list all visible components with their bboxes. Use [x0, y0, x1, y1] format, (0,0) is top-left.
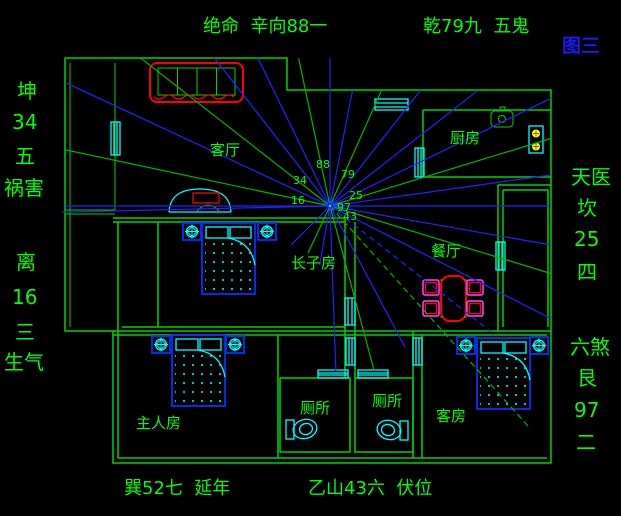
compass-ray — [330, 206, 551, 245]
compass-ray — [308, 206, 330, 253]
center-number-34: 34 — [293, 175, 307, 187]
window-bedroom-right — [345, 298, 355, 325]
annotation-top-left: 绝命 辛向88一 — [203, 17, 327, 37]
compass-ray — [62, 206, 330, 212]
window-corridor-left — [346, 338, 355, 365]
annotation-left-li: 离 — [16, 251, 36, 273]
annotation-left-san: 三 — [15, 321, 35, 343]
room-label-toilet-left: 厕所 — [300, 400, 330, 417]
nightstand — [226, 336, 244, 353]
annotation-right-97: 97 — [574, 399, 599, 421]
figure-tag: 图三 — [562, 36, 600, 57]
annotation-left-wu: 五 — [15, 145, 35, 167]
annotation-right-liusha: 六煞 — [570, 336, 610, 358]
compass-ray — [214, 58, 330, 206]
annotation-right-tianyi: 天医 — [571, 166, 611, 188]
annotation-right-kan: 坎 — [577, 197, 597, 219]
annotation-left-34: 34 — [12, 111, 37, 133]
annotation-right-25: 25 — [574, 228, 599, 250]
bed-eldest-son — [202, 223, 255, 294]
room-label-master: 主人房 — [136, 415, 181, 432]
nightstand — [183, 223, 201, 240]
stove — [529, 126, 543, 153]
sofa — [150, 63, 243, 102]
compass-ray — [330, 206, 551, 274]
furniture — [150, 63, 548, 442]
bed-master — [172, 335, 225, 406]
toilet-fixture-right — [375, 418, 408, 443]
nightstand — [457, 337, 475, 354]
dining-table-set — [423, 276, 483, 321]
compass-ray — [330, 206, 336, 371]
annotation-left-16: 16 — [12, 286, 37, 308]
toilet-fixture-left — [286, 417, 319, 442]
annotation-bottom-right: 乙山43六 伏位 — [308, 479, 432, 499]
center-number-79: 79 — [341, 169, 355, 181]
annotation-left-huohai: 祸害 — [4, 177, 44, 199]
annotation-right-er: 二 — [576, 431, 596, 453]
center-number-16: 16 — [291, 195, 305, 207]
annotation-top-right: 乾79九 五鬼 — [423, 17, 529, 37]
room-label-eldest-son: 长子房 — [291, 255, 336, 272]
center-number-25: 25 — [349, 190, 363, 202]
annotation-left-kun: 坤 — [17, 80, 37, 102]
window-toilet-right — [358, 370, 388, 378]
window-top-wall — [375, 99, 408, 110]
room-label-dining-room: 餐厅 — [431, 243, 461, 260]
room-label-living-room: 客厅 — [210, 142, 240, 159]
room-label-kitchen: 厨房 — [450, 130, 480, 147]
nightstand — [530, 337, 548, 354]
annotation-right-gen: 艮 — [577, 367, 597, 389]
center-number-88: 88 — [316, 159, 330, 171]
compass-ray — [330, 206, 490, 331]
window-corridor-right — [413, 338, 422, 365]
cad-floorplan-screen: 绝命 辛向88一 乾79九 五鬼 图三 坤 34 五 祸害 离 16 三 生气 … — [0, 0, 621, 516]
center-number-43: 43 — [343, 211, 357, 223]
window-toilet-left — [318, 370, 348, 378]
annotation-right-si: 四 — [577, 261, 597, 283]
room-label-guest: 客房 — [436, 408, 466, 425]
nightstand — [152, 336, 170, 353]
compass-ray — [330, 139, 551, 207]
nightstand — [258, 223, 276, 240]
compass-center-dot — [329, 205, 331, 207]
annotation-left-shengqi: 生气 — [4, 351, 44, 373]
room-label-toilet-right: 厕所 — [372, 393, 402, 410]
bed-guest — [477, 338, 530, 409]
annotation-bottom-left: 巽52七 延年 — [124, 479, 230, 499]
